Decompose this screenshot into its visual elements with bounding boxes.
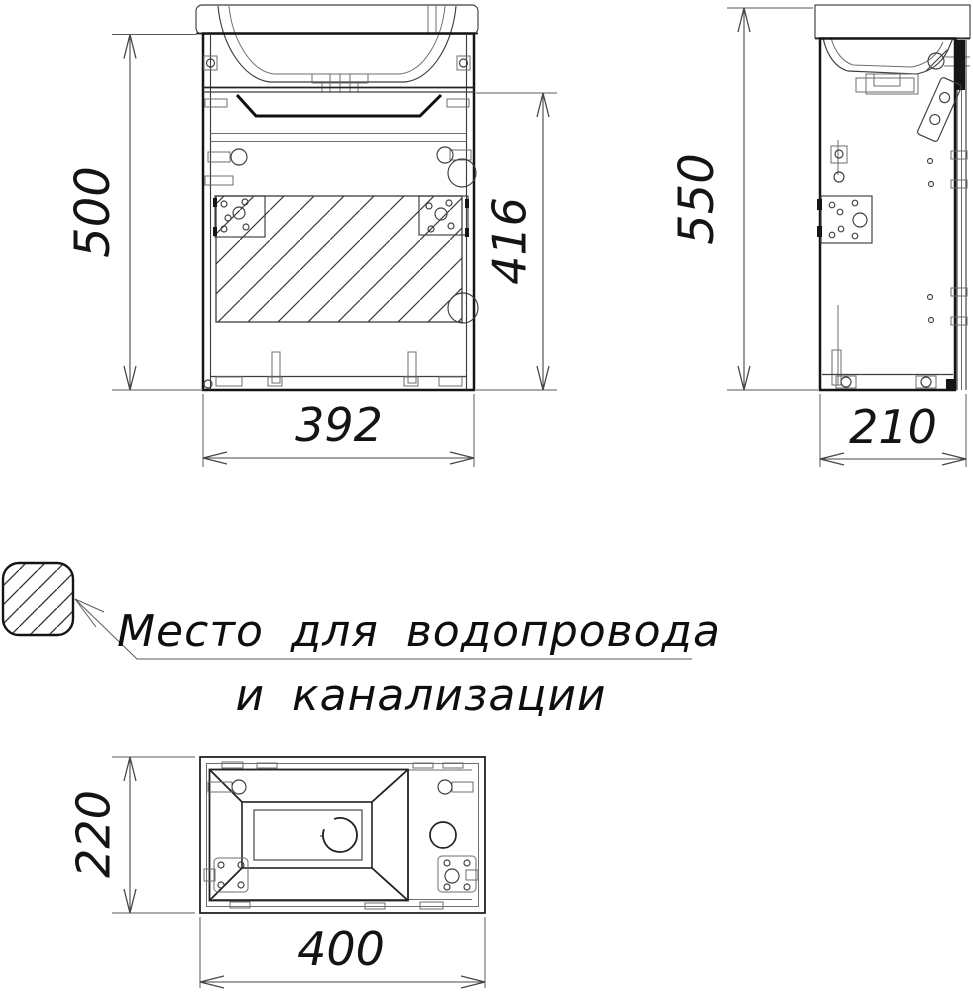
vanity-cabinet-technical-drawing: 500 416 392 bbox=[0, 0, 973, 1000]
front-plumbing-hatch-area bbox=[213, 196, 478, 323]
note-line-1: Место для водопровода bbox=[117, 606, 721, 657]
front-width-dim-label: 392 bbox=[295, 398, 383, 452]
side-height-dim-label: 550 bbox=[669, 153, 725, 245]
front-opening-height-dim-label: 416 bbox=[483, 197, 537, 285]
side-depth-dim-label: 210 bbox=[849, 400, 937, 454]
front-height-dim-label: 500 bbox=[65, 166, 121, 258]
top-depth-dim-label: 220 bbox=[67, 790, 121, 878]
hatched-area-icon bbox=[3, 563, 73, 635]
hatched-area-icon bbox=[216, 196, 462, 322]
note-line-2: и канализации bbox=[235, 670, 606, 721]
door-edge-mark bbox=[956, 40, 965, 90]
top-width-dim-label: 400 bbox=[297, 922, 385, 976]
drawing-background bbox=[0, 0, 973, 1000]
